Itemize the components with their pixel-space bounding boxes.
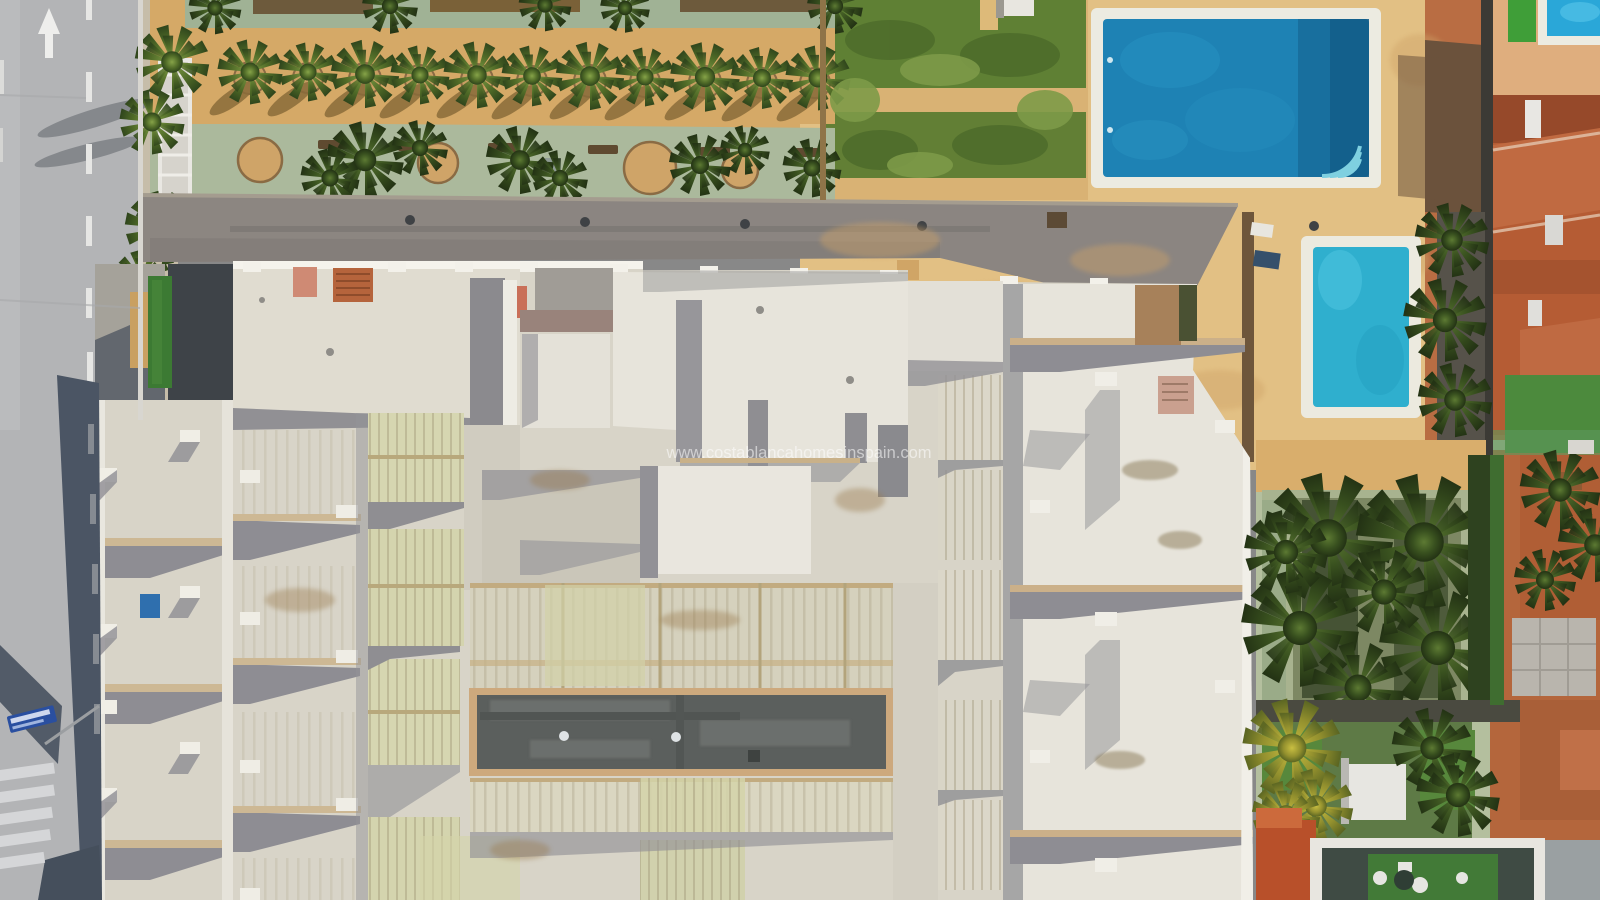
svg-text:www.costablancahomesinspain.co: www.costablancahomesinspain.com	[665, 444, 931, 462]
